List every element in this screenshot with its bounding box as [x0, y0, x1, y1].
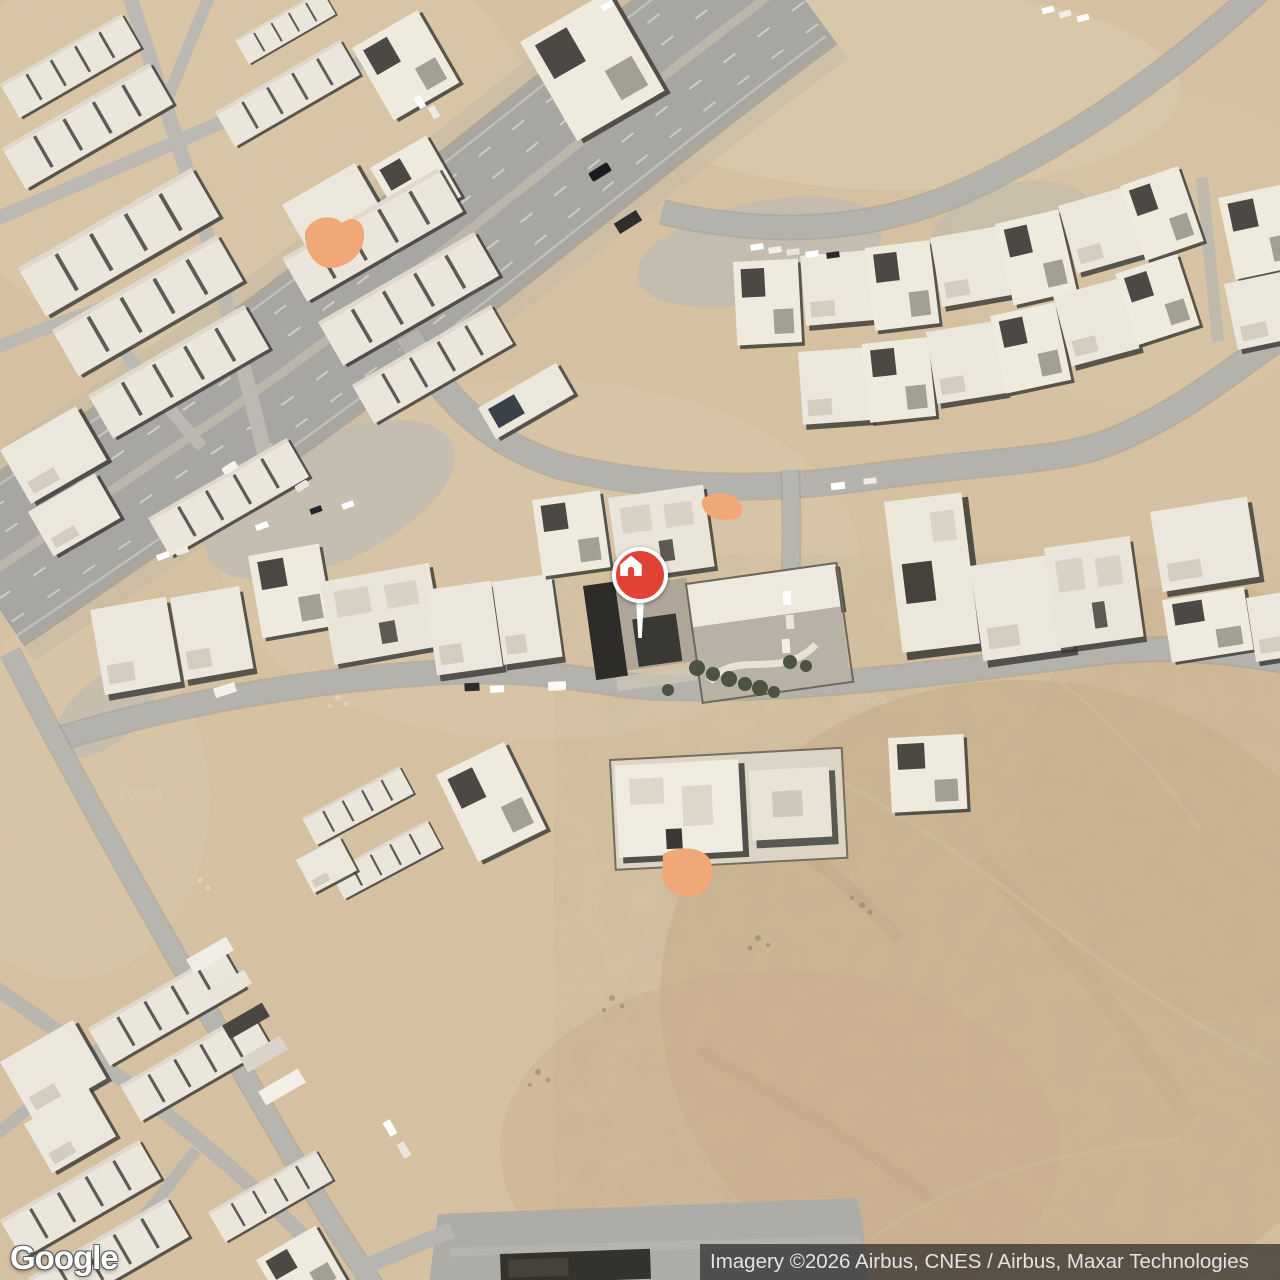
imagery-attribution: Imagery ©2026 Airbus, CNES / Airbus, Max… — [700, 1244, 1280, 1280]
google-logo[interactable]: Google — [10, 1239, 118, 1277]
satellite-map[interactable]: ©2026 ©2026 Google Imagery ©2026 Airbus,… — [0, 0, 1280, 1280]
highlight-parcel-3 — [662, 848, 712, 897]
home-icon — [616, 551, 646, 581]
watermark-text: ©2026 — [842, 691, 886, 708]
marker-circle — [612, 547, 668, 603]
satellite-imagery: ©2026 ©2026 — [0, 0, 1280, 1280]
watermark-text: ©2026 — [118, 787, 162, 804]
